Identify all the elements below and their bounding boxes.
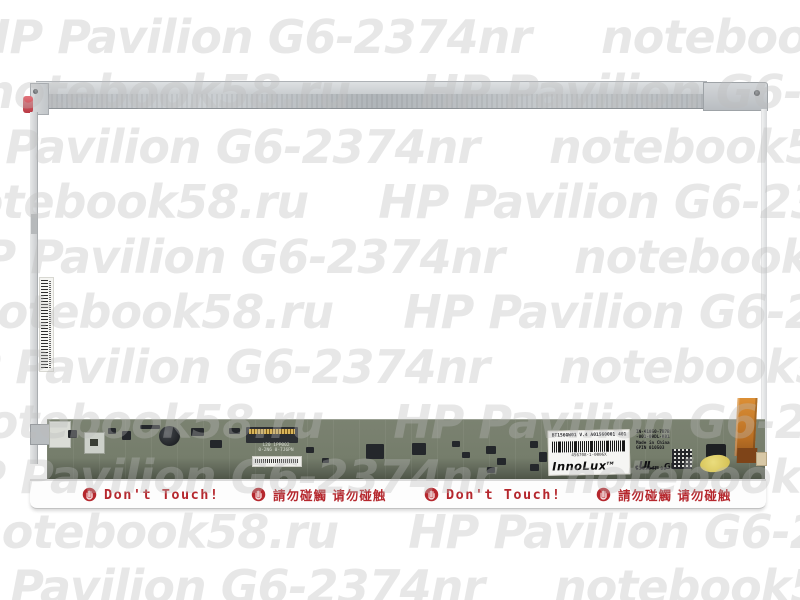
gold-pins-icon [249,429,295,434]
pcb-transformer [84,432,105,454]
pcb-chip [366,444,384,459]
watermark-row: notebook58.ruHP Pavilion G6-2374nr [0,175,800,230]
pcb-component [191,428,204,436]
pcb-chip [412,443,426,455]
no-touch-warning-cn: 請勿碰觸 请勿碰触 [596,481,731,508]
watermark-row: HP Pavilion G6-2374nrnotebook58.ru [0,10,800,65]
watermark-row: notebook58.ruHP Pavilion G6-2374nr [0,285,800,340]
dont-touch-warning: Don't Touch! [424,481,562,508]
pcb-print-text: L20 1PP002 0-2N6 0-7J6PN [250,443,302,453]
dont-touch-warning: Don't Touch! [82,481,220,508]
left-rail-mark [31,214,37,234]
pcb-component [530,464,539,471]
no-touch-warning-cn: 請勿碰觸 请勿碰触 [251,481,386,508]
warning-text: 請勿碰觸 请勿碰触 [273,485,386,504]
pcb-component [322,458,329,463]
lvds-connector [246,427,298,443]
panel-spec-sticker: BT156GW01 V.4 A01560001 401 456708-1-000… [548,429,631,475]
pcb-round-component [159,426,180,446]
warning-text: 請勿碰觸 请勿碰触 [618,485,731,504]
pcb-component [462,452,470,458]
left-connector-tab [30,424,50,445]
no-touch-hand-icon [251,487,266,502]
left-mount-rail [30,112,38,464]
serial-barcode-label [39,277,54,372]
panel-model-text: BT156GW01 V.4 A01560001 401 [552,432,626,439]
pcb-component [530,441,538,448]
ul-file-number: E253547 00 [636,467,666,472]
no-touch-hand-icon [596,487,611,502]
screw-hole-icon [33,89,38,94]
watermark-row: HP Pavilion G6-2374nrnotebook58.ru [0,120,800,175]
warning-text: Don't Touch! [104,487,220,503]
screw-hole-icon [754,90,760,96]
pcb-component [68,430,77,438]
watermark-row: HP Pavilion G6-2374nrnotebook58.ru [0,340,800,395]
red-hinge-pad [23,96,33,113]
barcode-microtext [49,281,51,368]
pcb-component [122,431,131,440]
pcb-component [539,452,547,462]
pcb-component [487,467,495,473]
pcb-component [306,447,314,453]
manufacture-info-text: IN-41050-7B7B -001-09DL-K01 Made in Chin… [636,430,676,452]
pcb-component [452,441,460,447]
top-metal-bracket [46,94,735,109]
pcb-component [497,458,506,465]
mini-barcode-label [252,456,302,467]
watermark-row: HP Pavilion G6-2374nrnotebook58.ru [0,560,800,600]
bracket-right-block [703,82,768,111]
product-photo: L20 1PP002 0-2N6 0-7J6PN BT156GW01 V.4 A… [0,0,800,600]
right-panel-edge [761,109,767,457]
watermark-row: notebook58.ruHP Pavilion G6-2374nr [0,505,800,560]
warning-strip: Don't Touch! 請勿碰觸 请勿碰触 Don't Touch! [30,479,766,509]
no-touch-hand-icon [82,487,97,502]
qr-code [672,449,692,469]
pcb-component [210,440,222,448]
barcode-icon [41,280,48,369]
pcb-component [229,428,240,434]
pcb-component [756,452,767,466]
innolux-logo: InnoLuxTM [552,456,626,473]
pcb-component [140,425,160,429]
pcb-component [486,446,496,454]
pcb-component [108,428,116,434]
no-touch-hand-icon [424,487,439,502]
warning-text: Don't Touch! [446,487,562,503]
flex-cable-end [737,448,758,463]
watermark-row: HP Pavilion G6-2374nrnotebook58.ru [0,230,800,285]
